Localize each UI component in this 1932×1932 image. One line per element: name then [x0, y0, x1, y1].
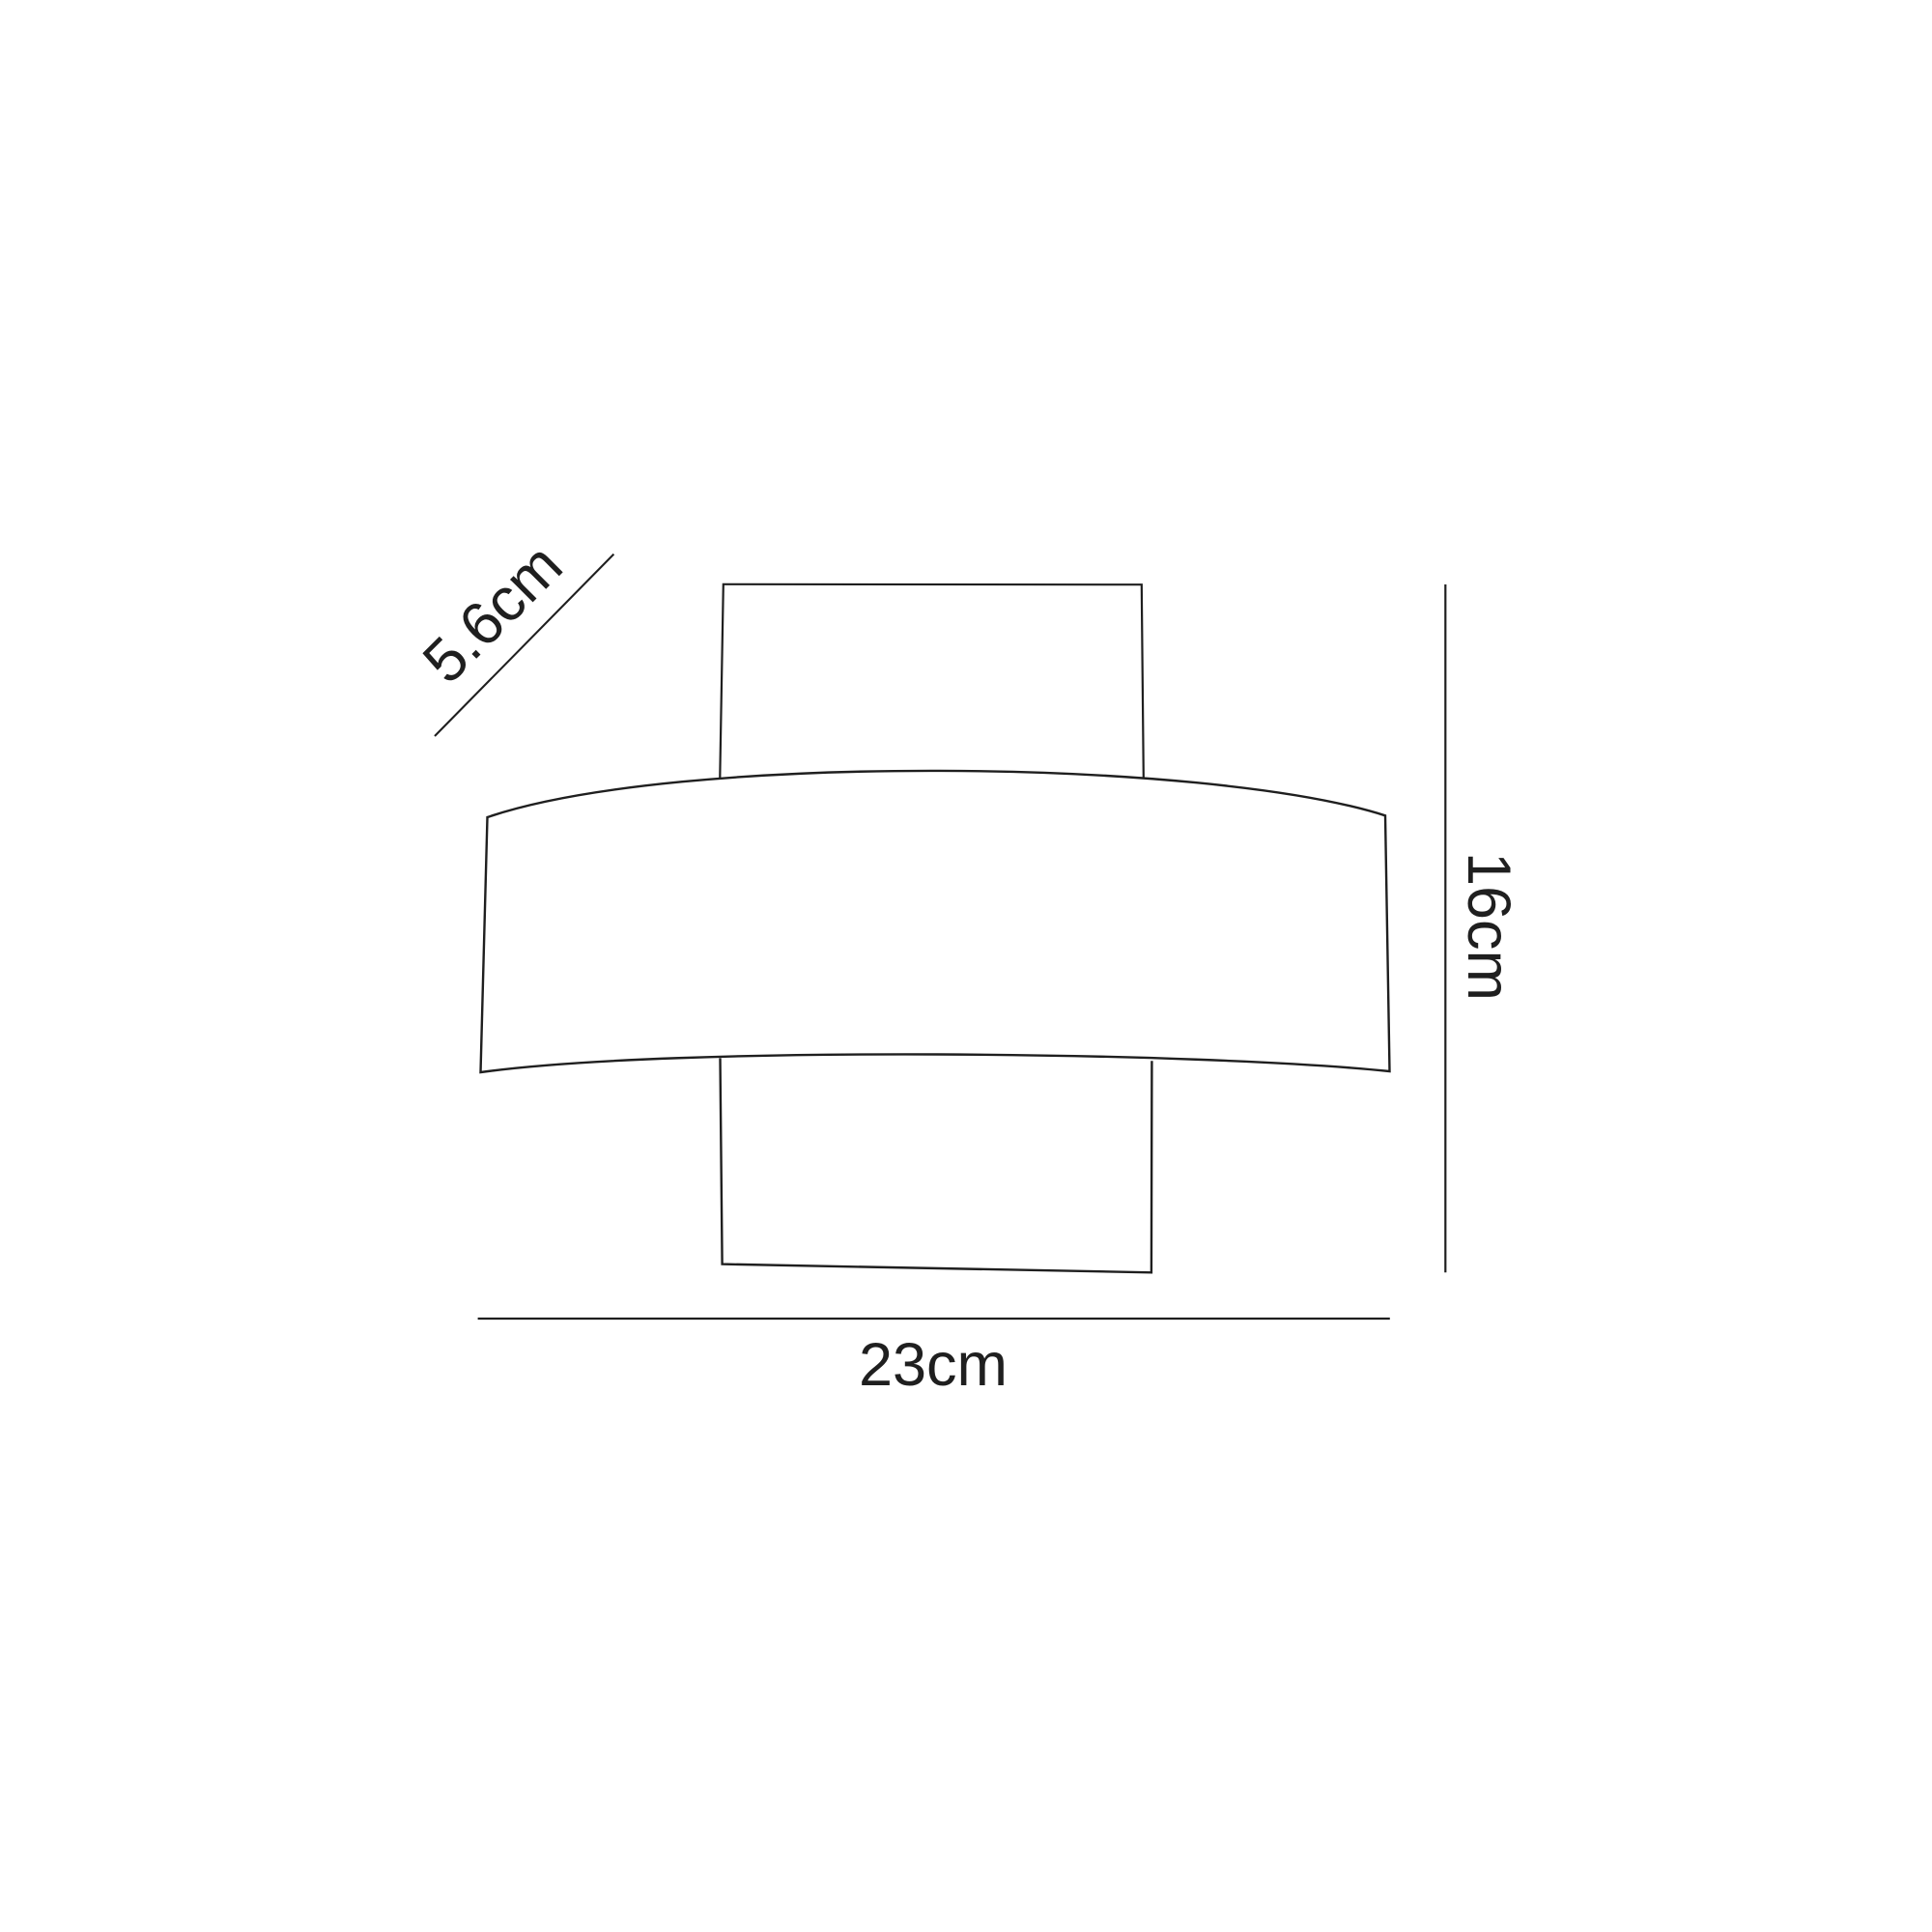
- svg-text:23cm: 23cm: [859, 1331, 1008, 1399]
- svg-text:16cm: 16cm: [1455, 852, 1522, 1001]
